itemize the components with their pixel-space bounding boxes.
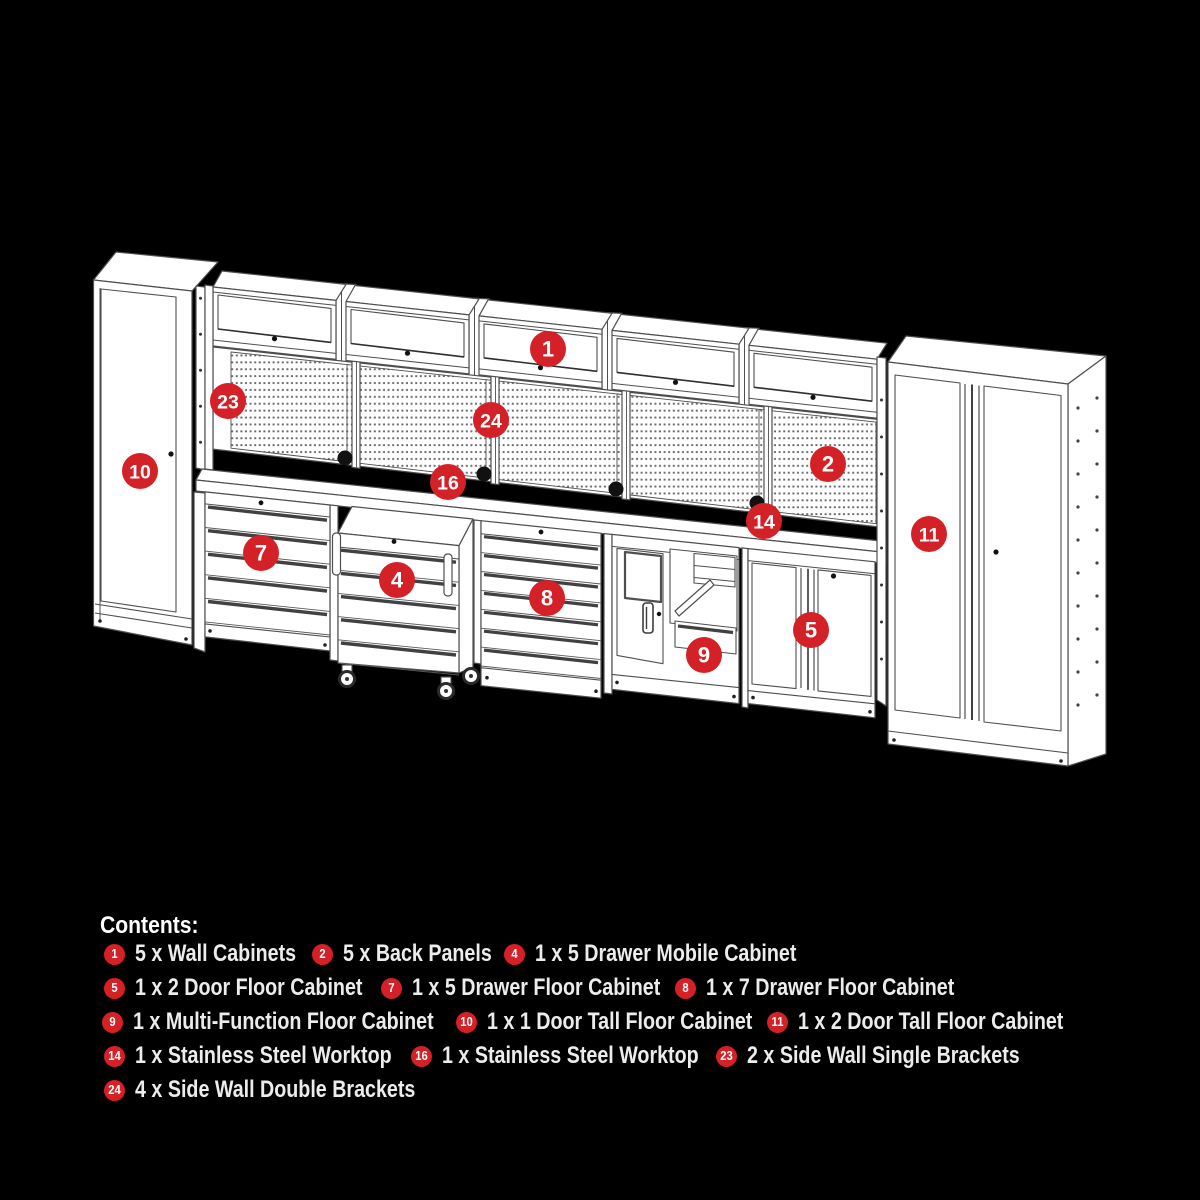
svg-text:8: 8 [541,586,553,611]
svg-text:14: 14 [753,512,775,534]
svg-text:24: 24 [480,411,502,433]
svg-text:10: 10 [129,462,151,484]
svg-text:4: 4 [391,568,404,593]
svg-text:16: 16 [437,473,459,495]
svg-text:23: 23 [217,392,239,414]
svg-text:2: 2 [822,452,834,477]
svg-text:5: 5 [805,618,817,643]
svg-text:7: 7 [255,541,267,566]
svg-text:1: 1 [542,337,554,362]
svg-text:9: 9 [698,643,710,668]
svg-text:11: 11 [919,525,940,547]
